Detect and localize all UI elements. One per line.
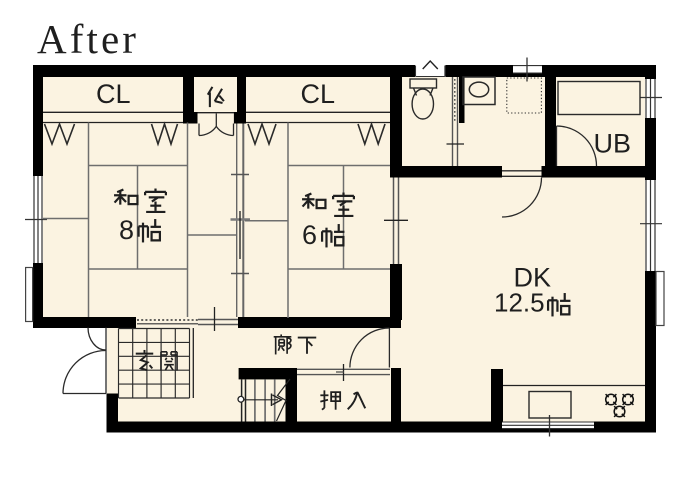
svg-text:CL: CL (301, 79, 336, 109)
svg-text:12.5: 12.5 (494, 288, 545, 318)
svg-text:UB: UB (594, 129, 632, 159)
svg-text:CL: CL (96, 79, 131, 109)
svg-text:8: 8 (119, 215, 134, 245)
svg-text:6: 6 (302, 220, 317, 250)
svg-text:After: After (37, 16, 139, 62)
